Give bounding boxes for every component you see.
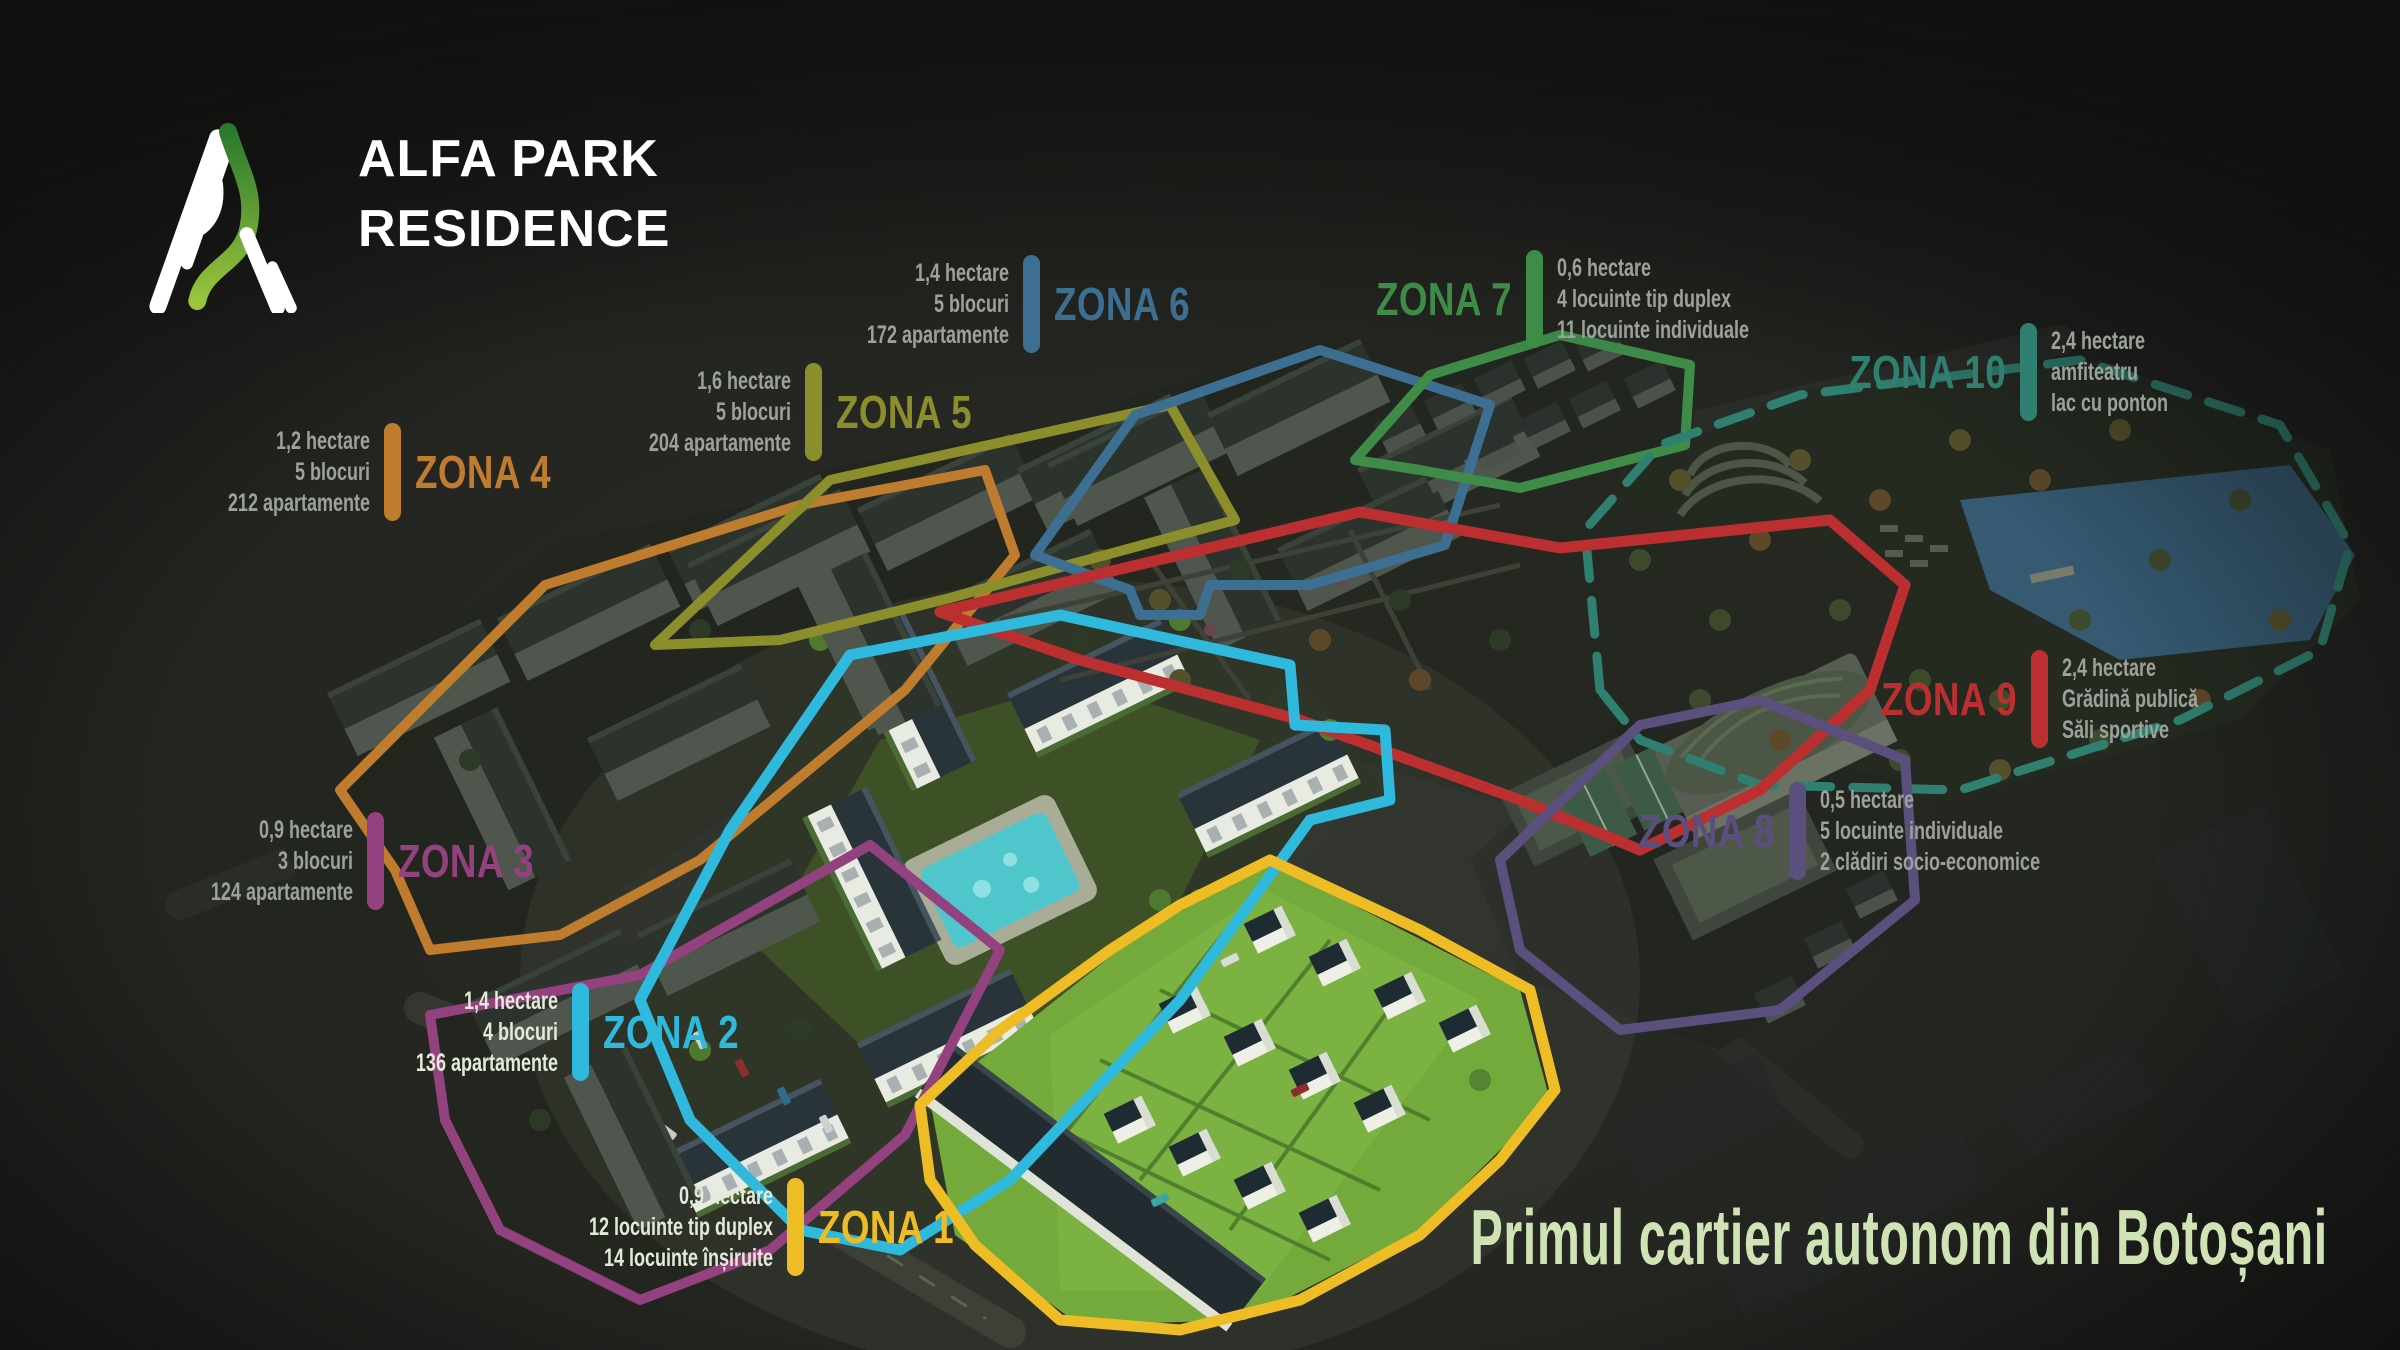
- zone-4-stat-blocks: 5 blocuri: [132, 457, 370, 488]
- tagline: Primul cartier autonom din Botoșani: [1471, 1192, 2328, 1283]
- zone-3-bar: [367, 812, 384, 910]
- zone-6-stats: 1,4 hectare 5 blocuri 172 apartamente: [771, 258, 1009, 351]
- zone-6-name: ZONA 6: [1054, 277, 1190, 331]
- zone-2-name: ZONA 2: [603, 1005, 739, 1059]
- zone-4-bar: [384, 423, 401, 521]
- zone-4-stat-area: 1,2 hectare: [132, 426, 370, 457]
- zone-2-label: 1,4 hectare 4 blocuri 136 apartamente ZO…: [228, 983, 773, 1081]
- zone-9-stat-sports: Săli sportive: [2062, 715, 2393, 746]
- zone-2-stat-blocks: 4 blocuri: [320, 1017, 558, 1048]
- brand-logo: ALFA PARK RESIDENCE: [138, 108, 670, 313]
- brand-name-line1: ALFA PARK: [358, 124, 670, 194]
- zone-6-stat-area: 1,4 hectare: [771, 258, 1009, 289]
- zone-8-stat-individual: 5 locuinte individuale: [1820, 816, 2151, 847]
- zone-10-stats: 2,4 hectare amfiteatru lac cu ponton: [2051, 326, 2382, 419]
- zone-3-label: 0,9 hectare 3 blocuri 124 apartamente ZO…: [23, 812, 568, 910]
- zone-9-bar: [2031, 650, 2048, 748]
- zone-7-bar: [1526, 250, 1543, 348]
- zone-3-stat-units: 124 apartamente: [115, 877, 353, 908]
- zone-2-stat-area: 1,4 hectare: [320, 986, 558, 1017]
- zone-1-label: 0,9 hectare 12 locuinte tip duplex 14 lo…: [443, 1178, 988, 1276]
- zone-5-stat-area: 1,6 hectare: [553, 366, 791, 397]
- zone-5-stats: 1,6 hectare 5 blocuri 204 apartamente: [553, 366, 791, 459]
- zone-5-bar: [805, 363, 822, 461]
- zone-3-name: ZONA 3: [398, 834, 534, 888]
- zone-10-bar: [2020, 323, 2037, 421]
- zone-10-label: ZONA 10 2,4 hectare amfiteatru lac cu po…: [1810, 323, 2400, 421]
- zone-7-stat-area: 0,6 hectare: [1557, 253, 1888, 284]
- zone-9-label: ZONA 9 2,4 hectare Grădină publică Săli …: [1847, 650, 2400, 748]
- zone-7-stat-duplex: 4 locuinte tip duplex: [1557, 284, 1888, 315]
- zone-9-stat-garden: Grădină publică: [2062, 684, 2393, 715]
- zone-3-stat-blocks: 3 blocuri: [115, 846, 353, 877]
- zone-10-name: ZONA 10: [1849, 345, 2006, 399]
- zone-6-stat-units: 172 apartamente: [771, 320, 1009, 351]
- zone-5-name: ZONA 5: [836, 385, 972, 439]
- zone-6-stat-blocks: 5 blocuri: [771, 289, 1009, 320]
- zone-5-stat-blocks: 5 blocuri: [553, 397, 791, 428]
- zone-6-label: 1,4 hectare 5 blocuri 172 apartamente ZO…: [679, 255, 1224, 353]
- zone-1-stats: 0,9 hectare 12 locuinte tip duplex 14 lo…: [535, 1181, 773, 1274]
- zone-10-stat-area: 2,4 hectare: [2051, 326, 2382, 357]
- zone-1-bar: [787, 1178, 804, 1276]
- zone-8-bar: [1789, 782, 1806, 880]
- zone-1-stat-duplex: 12 locuinte tip duplex: [535, 1212, 773, 1243]
- zone-8-label: ZONA 8 0,5 hectare 5 locuinte individual…: [1605, 782, 2280, 880]
- zone-9-name: ZONA 9: [1881, 672, 2017, 726]
- zone-9-stat-area: 2,4 hectare: [2062, 653, 2393, 684]
- zone-2-stat-units: 136 apartamente: [320, 1048, 558, 1079]
- zone-2-stats: 1,4 hectare 4 blocuri 136 apartamente: [320, 986, 558, 1079]
- zone-8-stat-socio: 2 clădiri socio-economice: [1820, 847, 2151, 878]
- zone-6-bar: [1023, 255, 1040, 353]
- brand-name-line2: RESIDENCE: [358, 194, 670, 264]
- zone-4-stat-units: 212 apartamente: [132, 488, 370, 519]
- masterplan-poster: ALFA PARK RESIDENCE 1,2 hectare 5 blocur…: [0, 0, 2400, 1350]
- zone-1-name: ZONA 1: [818, 1200, 954, 1254]
- zone-3-stat-area: 0,9 hectare: [115, 815, 353, 846]
- brand-name: ALFA PARK RESIDENCE: [358, 124, 670, 264]
- zone-7-name: ZONA 7: [1376, 272, 1512, 326]
- zone-9-stats: 2,4 hectare Grădină publică Săli sportiv…: [2062, 653, 2393, 746]
- zone-5-label: 1,6 hectare 5 blocuri 204 apartamente ZO…: [461, 363, 1006, 461]
- zone-5-stat-units: 204 apartamente: [553, 428, 791, 459]
- zone-4-stats: 1,2 hectare 5 blocuri 212 apartamente: [132, 426, 370, 519]
- zone-1-stat-area: 0,9 hectare: [535, 1181, 773, 1212]
- zone-10-stat-amphitheater: amfiteatru: [2051, 357, 2382, 388]
- zone-8-name: ZONA 8: [1639, 804, 1775, 858]
- alfa-park-logo-mark: [138, 108, 318, 313]
- zone-10-stat-lake: lac cu ponton: [2051, 388, 2382, 419]
- zone-8-stats: 0,5 hectare 5 locuinte individuale 2 clă…: [1820, 785, 2151, 878]
- zone-8-stat-area: 0,5 hectare: [1820, 785, 2151, 816]
- zone-1-stat-row: 14 locuinte înșiruite: [535, 1243, 773, 1274]
- zone-3-stats: 0,9 hectare 3 blocuri 124 apartamente: [115, 815, 353, 908]
- zone-2-bar: [572, 983, 589, 1081]
